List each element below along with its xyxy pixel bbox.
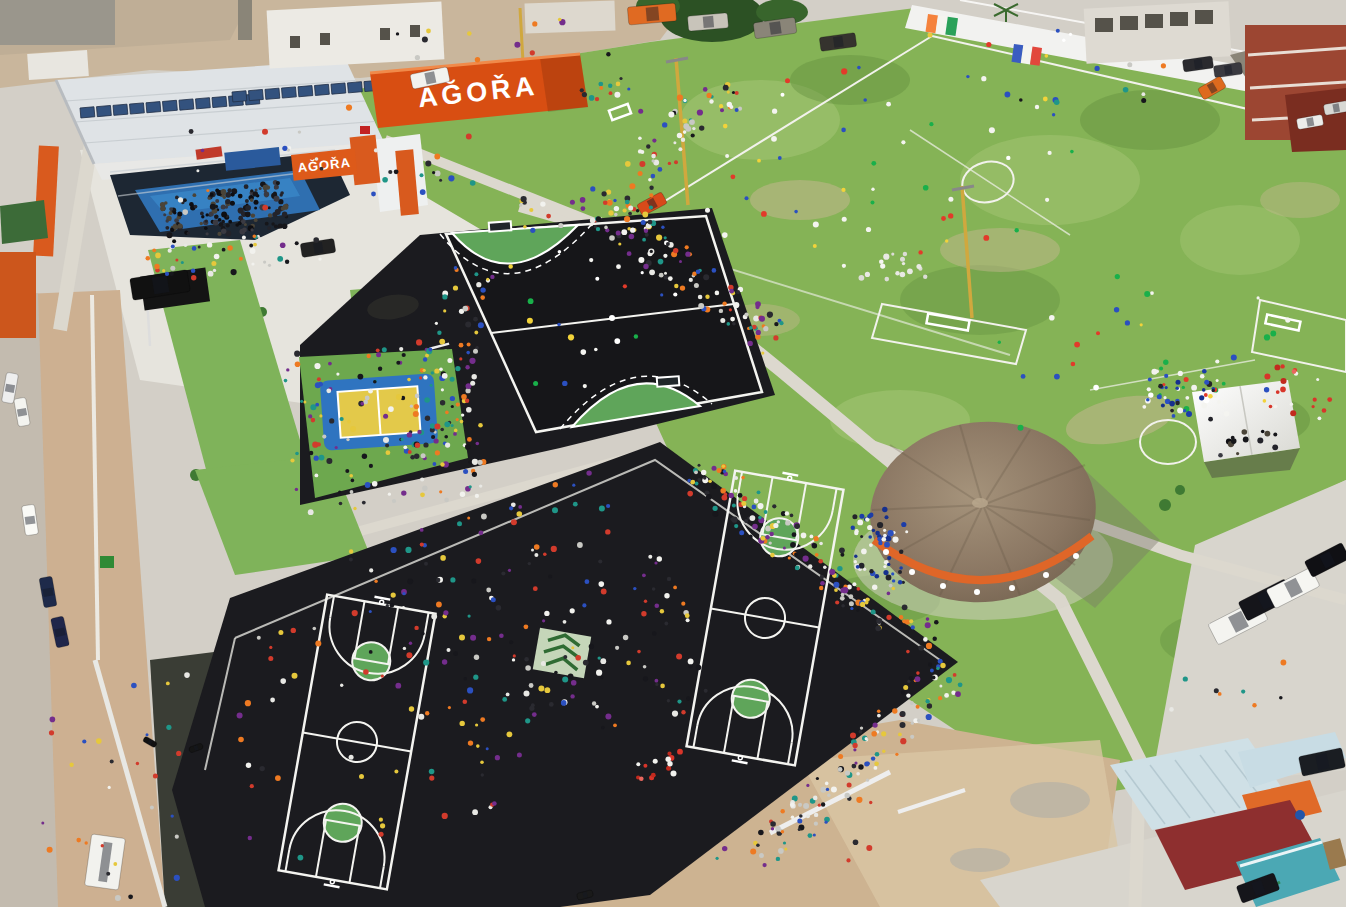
green-tent [0, 200, 48, 244]
person-dot [867, 514, 872, 519]
person-dot [1200, 374, 1205, 379]
person-dot [854, 762, 857, 765]
person-dot [1158, 384, 1163, 389]
person-dot [1272, 444, 1278, 450]
person-dot [1236, 452, 1239, 455]
person-dot [642, 573, 646, 577]
person-dot [877, 709, 881, 713]
person-dot [554, 671, 558, 675]
person-dot [1257, 296, 1260, 299]
person-dot [826, 788, 829, 791]
person-dot [408, 450, 412, 454]
person-dot [608, 210, 613, 215]
person-dot [390, 603, 395, 608]
person-dot [753, 316, 759, 322]
person-dot [774, 322, 778, 326]
person-dot [171, 245, 175, 249]
person-dot [467, 516, 470, 519]
person-dot [245, 205, 251, 211]
person-dot [750, 515, 756, 521]
person-dot [187, 232, 190, 235]
person-dot [629, 183, 635, 189]
person-dot [1318, 416, 1322, 420]
person-dot [385, 444, 389, 448]
person-dot [719, 104, 723, 108]
person-dot [652, 159, 655, 162]
person-dot [731, 517, 737, 523]
person-dot [638, 109, 643, 114]
person-dot [1015, 228, 1019, 232]
person-dot [439, 490, 442, 493]
person-dot [838, 767, 843, 772]
person-dot [861, 549, 867, 555]
person-dot [386, 604, 389, 607]
handball-goal-north [489, 221, 512, 232]
person-dot [604, 226, 608, 230]
person-dot [839, 547, 845, 553]
person-dot [755, 301, 761, 307]
person-dot [399, 347, 403, 351]
person-dot [883, 570, 888, 575]
person-dot [371, 192, 376, 197]
person-dot [589, 644, 594, 649]
person-dot [553, 482, 558, 487]
person-dot [472, 374, 477, 379]
person-dot [280, 243, 286, 249]
person-dot [178, 223, 183, 228]
person-dot [842, 264, 846, 268]
person-dot [694, 470, 698, 474]
person-dot [705, 295, 709, 299]
person-dot [406, 652, 412, 658]
person-dot [615, 646, 619, 650]
person-dot [136, 762, 139, 765]
person-dot [431, 371, 434, 374]
person-dot [1280, 387, 1286, 393]
person-dot [454, 266, 458, 270]
person-dot [706, 494, 712, 500]
person-dot [681, 602, 685, 606]
person-dot [456, 246, 460, 250]
person-dot [723, 85, 729, 91]
person-dot [806, 784, 809, 787]
person-dot [1184, 377, 1189, 382]
person-dot [476, 442, 480, 446]
person-dot [648, 220, 653, 225]
person-dot [1169, 401, 1175, 407]
person-dot [732, 322, 736, 326]
person-dot [614, 213, 618, 217]
person-dot [388, 493, 391, 496]
person-dot [205, 219, 208, 222]
roof-apex [972, 498, 988, 508]
person-dot [253, 191, 258, 196]
person-dot [701, 470, 706, 475]
person-dot [571, 680, 577, 686]
person-dot [652, 631, 656, 635]
person-dot [842, 587, 848, 593]
person-dot [1071, 362, 1076, 367]
person-dot [725, 154, 729, 158]
person-dot [196, 169, 199, 172]
person-dot [1265, 431, 1271, 437]
person-dot [911, 722, 914, 725]
person-dot [841, 188, 845, 192]
person-dot [442, 813, 448, 819]
person-dot [907, 680, 910, 683]
person-dot [846, 858, 850, 862]
person-dot [729, 308, 732, 311]
person-dot [200, 212, 204, 216]
person-dot [184, 672, 190, 678]
person-dot [414, 626, 418, 630]
person-dot [423, 659, 429, 665]
person-dot [1222, 382, 1226, 386]
person-dot [672, 711, 678, 717]
person-dot [562, 677, 568, 683]
person-dot [601, 726, 605, 730]
person-dot [1204, 393, 1208, 397]
person-dot [424, 562, 428, 566]
person-dot [1281, 660, 1287, 666]
person-dot [425, 416, 430, 421]
person-dot [521, 196, 527, 202]
person-dot [856, 797, 862, 803]
person-dot [1316, 378, 1319, 381]
person-dot [850, 733, 856, 739]
person-dot [685, 613, 690, 618]
person-dot [225, 199, 230, 204]
person-dot [886, 102, 891, 107]
person-dot [709, 99, 713, 103]
person-dot [641, 220, 646, 225]
person-dot [1146, 398, 1150, 402]
person-dot [468, 615, 471, 618]
person-dot [928, 663, 932, 667]
person-dot [101, 844, 104, 847]
person-dot [932, 676, 936, 680]
person-dot [651, 154, 656, 159]
person-dot [169, 207, 173, 211]
person-dot [414, 454, 419, 459]
person-dot [177, 211, 182, 216]
person-dot [450, 577, 455, 582]
person-dot [478, 322, 484, 328]
person-dot [663, 254, 667, 258]
person-dot [532, 712, 537, 717]
person-dot [467, 342, 471, 346]
person-dot [841, 604, 845, 608]
person-dot [254, 218, 258, 222]
person-dot [673, 141, 676, 144]
person-dot [877, 714, 881, 718]
person-dot [852, 514, 857, 519]
person-dot [214, 254, 220, 260]
person-dot [1191, 385, 1197, 391]
person-dot [478, 423, 483, 428]
person-dot [108, 786, 111, 789]
person-dot [308, 509, 314, 515]
person-dot [872, 585, 877, 590]
person-dot [748, 341, 753, 346]
person-dot [900, 711, 906, 717]
person-dot [474, 655, 479, 660]
person-dot [450, 377, 455, 382]
person-dot [638, 257, 644, 263]
person-dot [459, 635, 465, 641]
person-dot [735, 91, 739, 95]
person-dot [819, 586, 823, 590]
person-dot [163, 213, 166, 216]
person-dot [402, 606, 405, 609]
person-dot [221, 220, 225, 224]
person-dot [598, 82, 603, 87]
person-dot [703, 87, 708, 92]
person-dot [350, 490, 354, 494]
person-dot [641, 150, 645, 154]
person-dot [580, 197, 586, 203]
person-dot [453, 432, 457, 436]
person-dot [407, 378, 411, 382]
person-dot [855, 529, 859, 533]
person-dot [621, 229, 627, 235]
person-dot [713, 506, 718, 511]
person-dot [523, 225, 527, 229]
person-dot [948, 197, 953, 202]
person-dot [403, 647, 406, 650]
person-dot [291, 628, 296, 633]
person-dot [651, 174, 656, 179]
person-dot [259, 187, 262, 190]
person-dot [761, 211, 767, 217]
person-dot [474, 272, 478, 276]
handball-goal-south [657, 376, 680, 387]
person-dot [667, 752, 671, 756]
person-dot [643, 665, 647, 669]
person-dot [544, 611, 549, 616]
person-dot [853, 743, 858, 748]
person-dot [673, 248, 678, 253]
person-dot [1172, 414, 1176, 418]
person-dot [461, 413, 464, 416]
person-dot [857, 520, 863, 526]
person-dot [582, 603, 586, 607]
person-dot [829, 569, 835, 575]
person-dot [264, 190, 267, 193]
person-dot [1070, 150, 1074, 154]
person-dot [575, 655, 581, 661]
person-dot [295, 241, 299, 245]
person-dot [781, 809, 785, 813]
person-dot [426, 29, 431, 34]
person-dot [1186, 411, 1192, 417]
person-dot [396, 394, 402, 400]
person-dot [276, 181, 280, 185]
person-dot [285, 260, 289, 264]
person-dot [798, 828, 801, 831]
person-dot [863, 98, 867, 102]
person-dot [694, 283, 699, 288]
person-dot [833, 582, 839, 588]
person-dot [533, 586, 538, 591]
person-dot [674, 284, 678, 288]
person-dot [472, 459, 478, 465]
person-dot [926, 643, 932, 649]
person-dot [530, 50, 535, 55]
person-dot [563, 620, 567, 624]
person-dot [677, 700, 681, 704]
person-dot [1140, 323, 1143, 326]
person-dot [734, 476, 738, 480]
person-dot [155, 253, 161, 259]
person-dot [936, 667, 939, 670]
person-dot [442, 294, 447, 299]
person-dot [1175, 401, 1179, 405]
person-dot [856, 609, 859, 612]
person-dot [901, 691, 905, 695]
person-dot [849, 601, 854, 606]
person-dot [639, 161, 645, 167]
solar-panel [130, 103, 145, 114]
person-dot [533, 381, 538, 386]
person-dot [1204, 380, 1209, 385]
person-dot [277, 256, 283, 262]
person-dot [867, 525, 872, 530]
person-dot [443, 610, 448, 615]
person-dot [1163, 360, 1168, 365]
person-dot [613, 199, 616, 202]
person-dot [717, 468, 722, 473]
person-dot [1183, 676, 1188, 681]
person-dot [637, 650, 641, 654]
person-dot [864, 762, 869, 767]
person-dot [683, 99, 686, 102]
person-dot [703, 476, 706, 479]
person-dot [892, 587, 896, 591]
person-dot [1279, 696, 1283, 700]
person-dot [226, 224, 230, 228]
person-dot [673, 586, 677, 590]
person-dot [423, 369, 426, 372]
person-dot [271, 222, 274, 225]
person-dot [730, 317, 735, 322]
person-dot [425, 711, 429, 715]
person-dot [492, 801, 497, 806]
person-dot [840, 553, 844, 557]
solar-panel [196, 98, 211, 109]
person-dot [810, 535, 814, 539]
person-dot [903, 685, 908, 690]
person-dot [242, 235, 246, 239]
person-dot [595, 97, 599, 101]
person-dot [794, 210, 798, 214]
person-dot [286, 368, 289, 371]
person-dot [614, 206, 619, 211]
person-dot [655, 603, 660, 608]
person-dot [756, 330, 761, 335]
person-dot [349, 474, 353, 478]
person-dot [563, 655, 567, 659]
person-dot [1269, 405, 1273, 409]
person-dot [651, 773, 656, 778]
person-dot [110, 759, 114, 763]
person-dot [757, 503, 763, 509]
person-dot [283, 204, 289, 210]
person-dot [592, 701, 596, 705]
person-dot [1127, 62, 1132, 67]
person-dot [222, 248, 226, 252]
person-dot [989, 127, 995, 133]
person-dot [814, 822, 818, 826]
person-dot [685, 245, 689, 249]
person-dot [255, 188, 258, 191]
person-dot [237, 712, 243, 718]
person-dot [594, 348, 598, 352]
person-dot [698, 295, 703, 300]
person-dot [806, 814, 810, 818]
person-dot [50, 717, 56, 723]
person-dot [463, 306, 469, 312]
person-dot [863, 568, 866, 571]
person-dot [655, 683, 658, 686]
person-dot [649, 186, 653, 190]
person-dot [902, 619, 906, 623]
person-dot [722, 846, 727, 851]
person-dot [466, 134, 472, 140]
person-dot [326, 388, 331, 393]
person-dot [606, 52, 610, 56]
person-dot [546, 214, 551, 219]
person-dot [892, 708, 897, 713]
person-dot [765, 535, 769, 539]
person-dot [599, 506, 605, 512]
person-dot [598, 656, 601, 659]
person-dot [885, 277, 890, 282]
person-dot [636, 209, 639, 212]
person-dot [764, 510, 768, 514]
person-dot [538, 686, 544, 692]
person-dot [1290, 403, 1293, 406]
person-dot [282, 212, 287, 217]
person-dot [781, 830, 785, 834]
person-dot [668, 162, 671, 165]
person-dot [1018, 425, 1024, 431]
person-dot [262, 129, 268, 135]
person-dot [583, 384, 587, 388]
person-dot [643, 264, 648, 269]
person-dot [181, 261, 184, 264]
person-dot [775, 826, 781, 832]
person-dot [292, 673, 298, 679]
person-dot [414, 404, 419, 409]
person-dot [761, 352, 764, 355]
person-dot [929, 122, 933, 126]
person-dot [1224, 411, 1229, 416]
person-dot [568, 334, 574, 340]
person-dot [298, 855, 304, 861]
person-dot [335, 446, 338, 449]
person-dot [413, 411, 419, 417]
person-dot [626, 661, 631, 666]
person-dot [813, 244, 817, 248]
person-dot [623, 208, 627, 212]
person-dot [907, 268, 913, 274]
person-dot [888, 530, 894, 536]
person-dot [686, 696, 691, 701]
person-dot [656, 235, 662, 241]
person-dot [309, 451, 313, 455]
person-dot [381, 674, 384, 677]
